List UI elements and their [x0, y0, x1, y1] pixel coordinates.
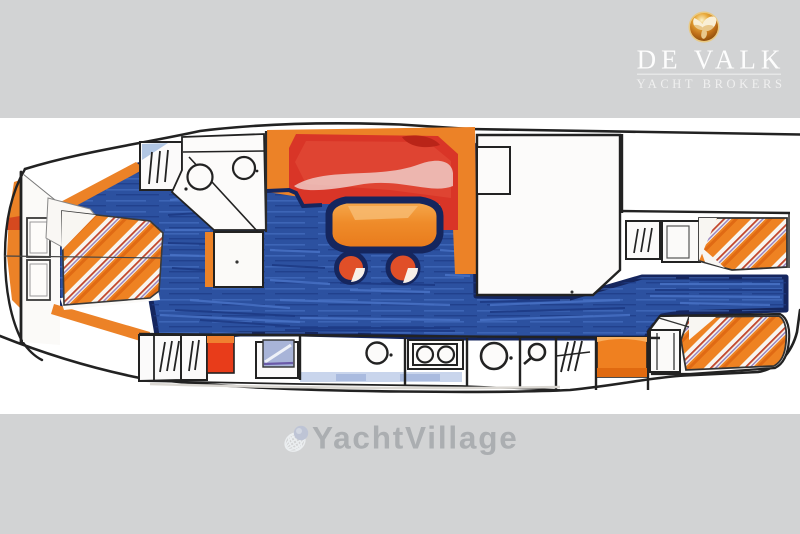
svg-text:DE VALK: DE VALK	[637, 45, 786, 75]
svg-text:YACHT BROKERS: YACHT BROKERS	[636, 77, 785, 91]
svg-text:YachtVillage: YachtVillage	[312, 420, 519, 456]
